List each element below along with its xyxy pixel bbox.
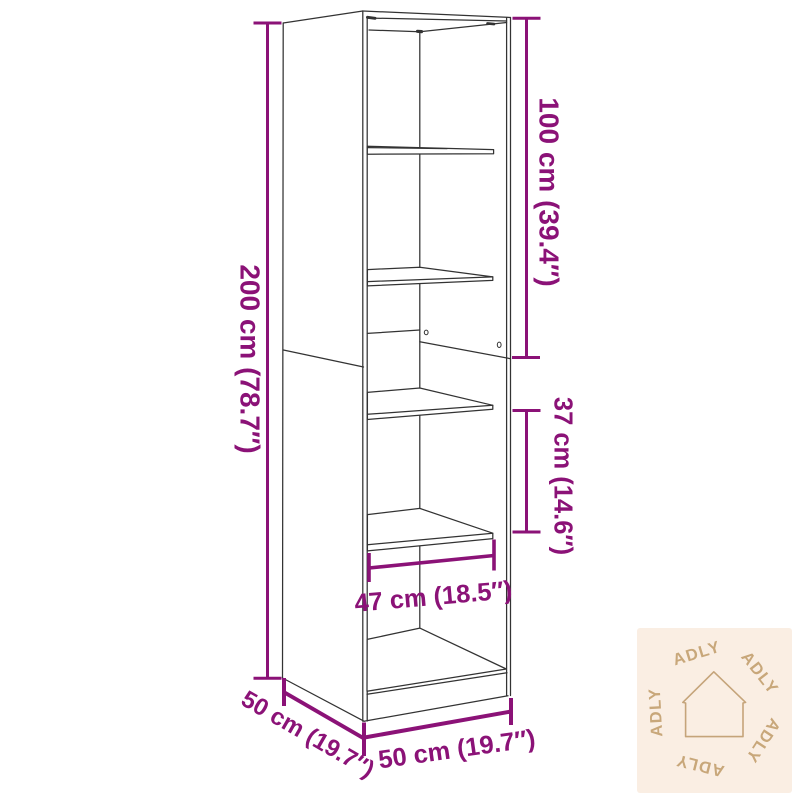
svg-text:ADLY: ADLY [646, 687, 667, 737]
svg-text:37 cm (14.6″): 37 cm (14.6″) [548, 397, 576, 555]
svg-text:200 cm (78.7″): 200 cm (78.7″) [235, 264, 266, 453]
svg-text:100 cm (39.4″): 100 cm (39.4″) [534, 97, 565, 286]
